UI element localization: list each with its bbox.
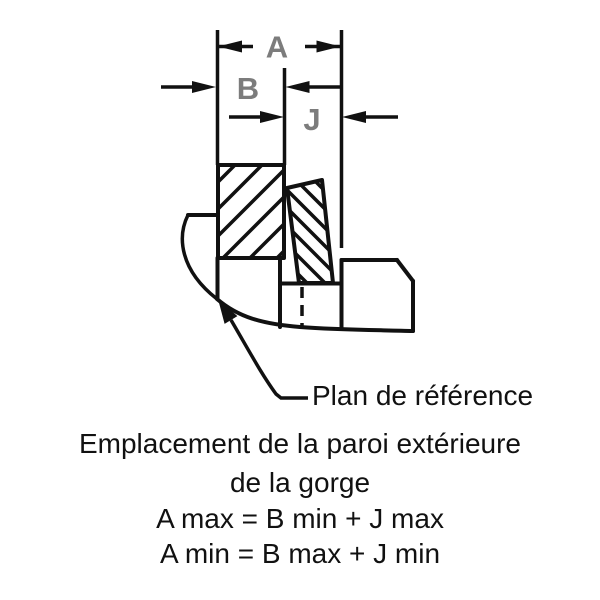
dimension-j: J	[229, 102, 398, 137]
tube-section-hatch	[142, 163, 372, 258]
annotation-texts: Plan de référence Emplacement de la paro…	[79, 380, 533, 569]
caption-line-1: Emplacement de la paroi extérieure	[79, 428, 521, 459]
break-line-arc	[182, 215, 217, 299]
technical-diagram-page: A B J	[0, 0, 600, 600]
dimension-a-label: A	[266, 30, 288, 65]
bottom-outline	[217, 299, 413, 331]
arrowhead-left-icon	[218, 41, 242, 53]
arrowhead-right-icon	[286, 81, 310, 93]
formula-2: A min = B max + J min	[160, 538, 440, 569]
reference-plane-label: Plan de référence	[312, 380, 533, 411]
leader-line	[231, 320, 308, 398]
arrowhead-left-icon	[260, 111, 284, 123]
dimension-a: A	[218, 30, 341, 65]
arrowhead-right-icon	[342, 111, 366, 123]
dimension-j-label: J	[303, 102, 320, 137]
dimension-b: B	[161, 71, 341, 106]
formula-1: A max = B min + J max	[156, 503, 444, 534]
arrowhead-left-icon	[192, 81, 216, 93]
chamfer-edge	[397, 260, 413, 281]
technical-diagram: A B J	[0, 0, 600, 600]
dimension-b-label: B	[237, 71, 259, 106]
reference-plane-leader	[218, 299, 308, 398]
arrowhead-right-icon	[317, 41, 341, 53]
part-cross-section	[142, 163, 424, 331]
caption-line-2: de la gorge	[230, 467, 370, 498]
